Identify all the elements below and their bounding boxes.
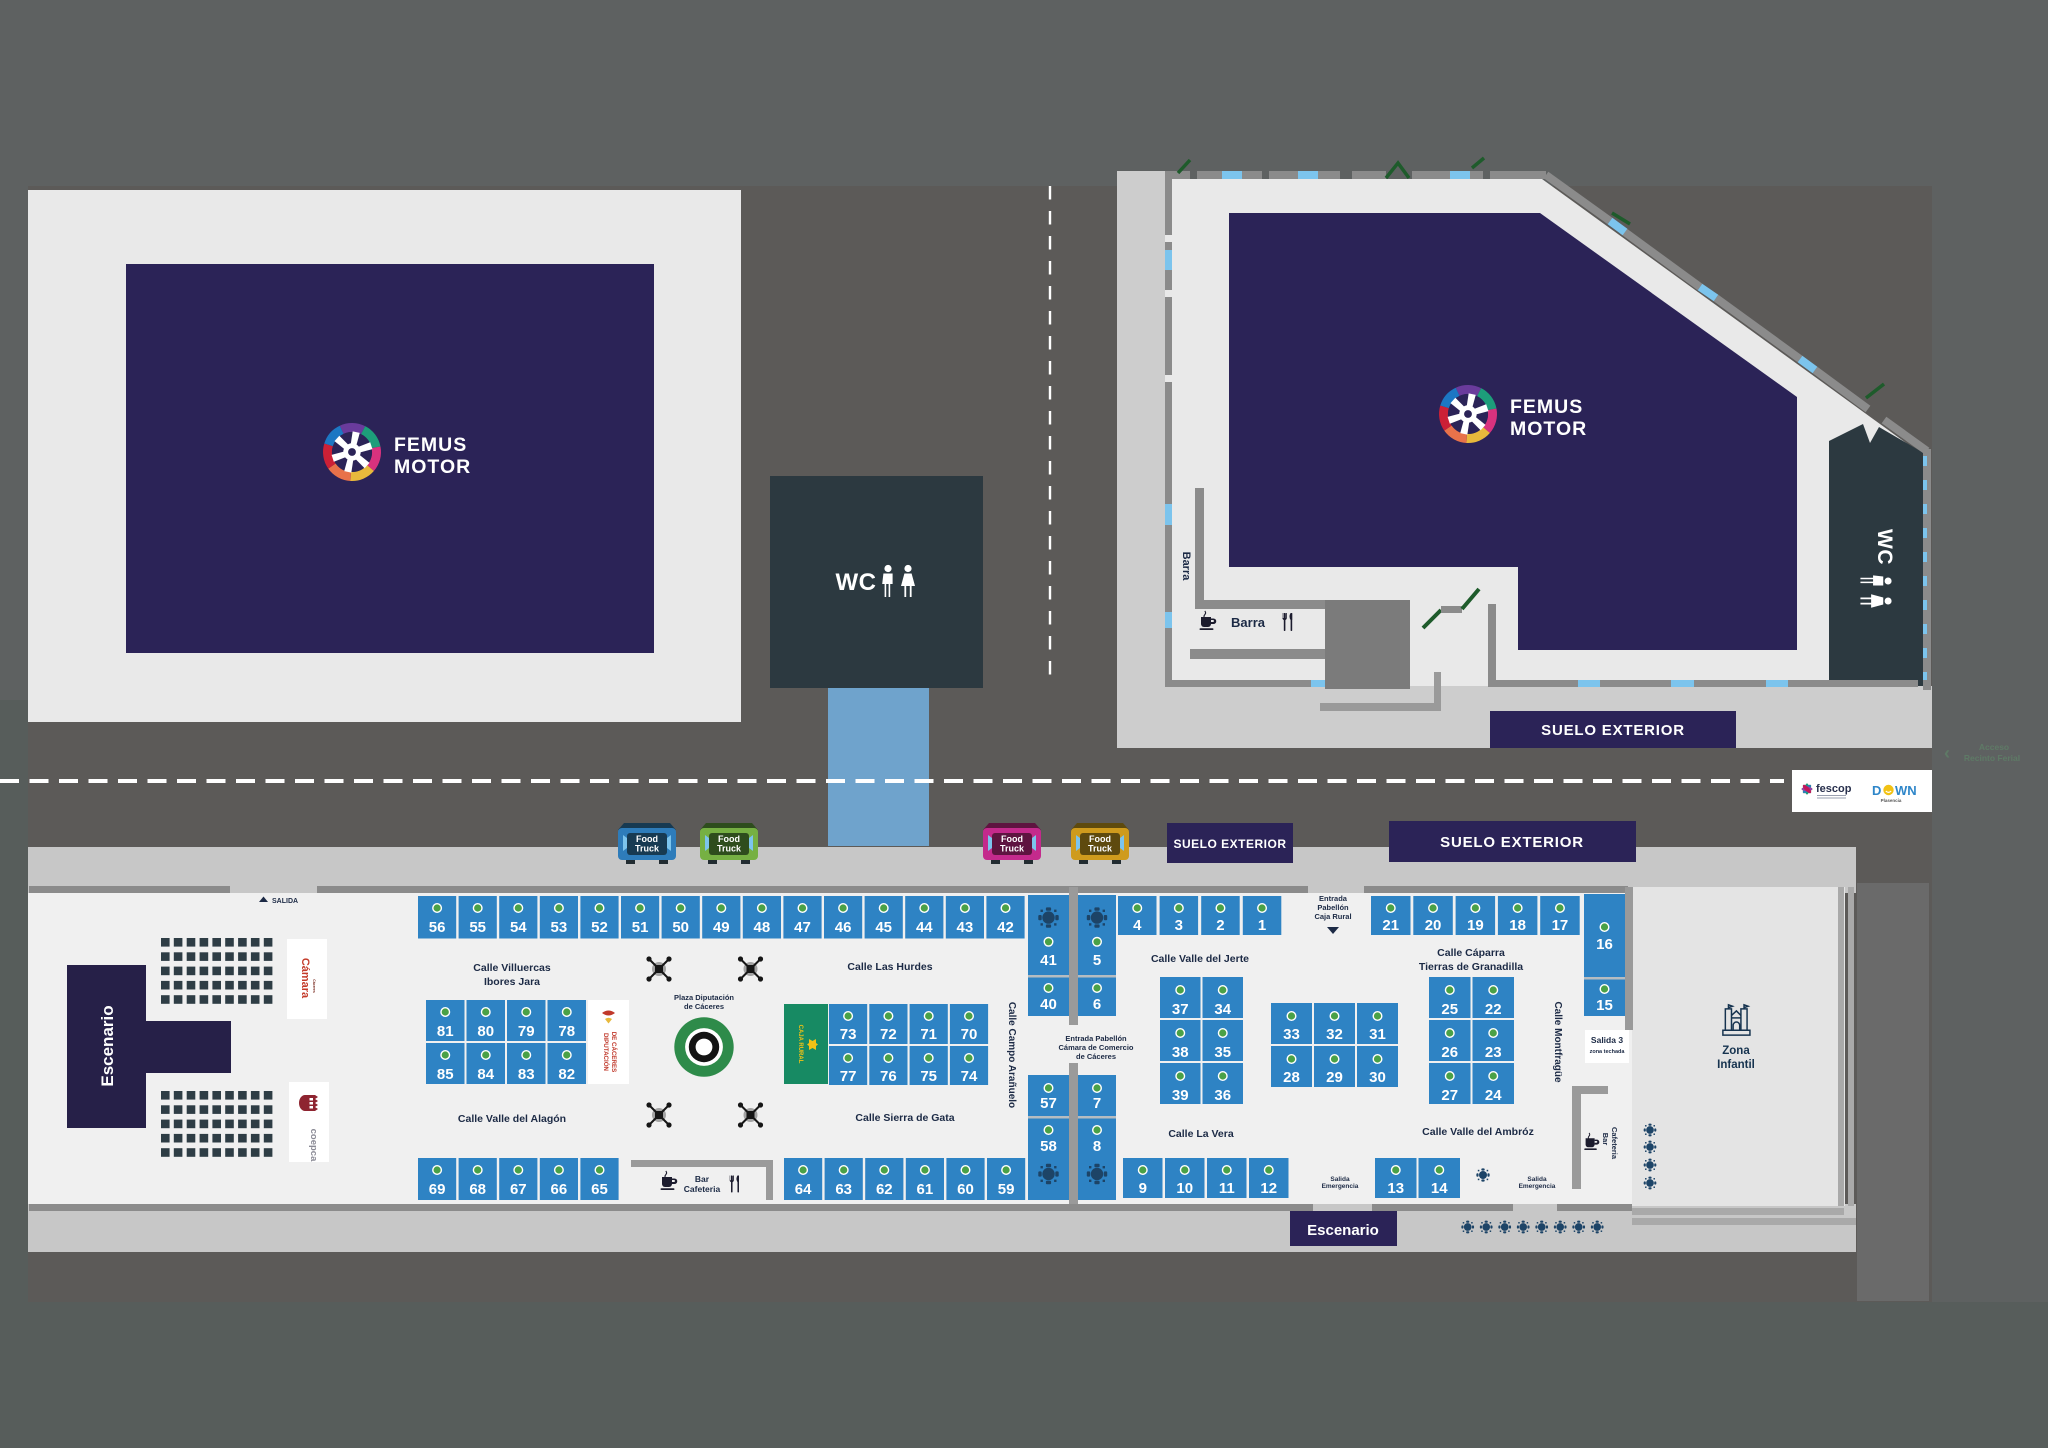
svg-text:69: 69 [429, 1181, 446, 1198]
svg-text:Escenario: Escenario [1307, 1222, 1379, 1239]
svg-text:16: 16 [1596, 936, 1613, 953]
svg-text:Cafeteria: Cafeteria [1610, 1127, 1619, 1160]
svg-text:Recinto Ferial: Recinto Ferial [1964, 753, 2020, 763]
svg-text:Food: Food [718, 834, 740, 844]
svg-text:Cámara: Cámara [299, 958, 311, 999]
svg-text:56: 56 [429, 919, 446, 936]
svg-text:Calle Las Hurdes: Calle Las Hurdes [847, 961, 932, 973]
svg-text:82: 82 [558, 1066, 575, 1083]
svg-text:19: 19 [1467, 917, 1484, 934]
svg-text:62: 62 [876, 1181, 893, 1198]
svg-text:zona techada: zona techada [1590, 1049, 1626, 1055]
svg-text:Truck: Truck [635, 844, 660, 854]
svg-text:57: 57 [1040, 1095, 1057, 1112]
svg-text:66: 66 [551, 1181, 568, 1198]
svg-text:8: 8 [1093, 1138, 1101, 1155]
svg-text:58: 58 [1040, 1138, 1057, 1155]
svg-text:Entrada Pabellón: Entrada Pabellón [1065, 1034, 1127, 1043]
svg-text:Calle Montfragüe: Calle Montfragüe [1552, 1001, 1563, 1083]
svg-text:WN: WN [1895, 783, 1917, 798]
svg-text:Calle Campo Arañuelo: Calle Campo Arañuelo [1006, 1002, 1017, 1108]
svg-text:Calle Sierra de Gata: Calle Sierra de Gata [855, 1112, 954, 1124]
svg-text:14: 14 [1431, 1180, 1448, 1197]
svg-text:de Cáceres: de Cáceres [684, 1002, 724, 1011]
svg-text:73: 73 [840, 1026, 857, 1043]
svg-text:Infantil: Infantil [1717, 1059, 1755, 1071]
svg-text:Ibores Jara: Ibores Jara [484, 976, 540, 988]
svg-text:Truck: Truck [1000, 844, 1025, 854]
svg-text:29: 29 [1326, 1069, 1343, 1086]
svg-text:52: 52 [591, 919, 608, 936]
svg-text:Zona: Zona [1722, 1045, 1750, 1057]
svg-text:80: 80 [477, 1023, 494, 1040]
svg-text:34: 34 [1214, 1001, 1231, 1018]
svg-text:32: 32 [1326, 1026, 1343, 1043]
svg-text:3: 3 [1175, 917, 1183, 934]
svg-text:Calle Villuercas: Calle Villuercas [473, 962, 551, 974]
svg-text:Tierras de Granadilla: Tierras de Granadilla [1419, 961, 1523, 973]
svg-text:30: 30 [1369, 1069, 1386, 1086]
svg-text:36: 36 [1214, 1087, 1231, 1104]
svg-text:26: 26 [1441, 1044, 1458, 1061]
svg-text:47: 47 [794, 919, 811, 936]
svg-text:45: 45 [875, 919, 892, 936]
svg-text:42: 42 [997, 919, 1014, 936]
svg-text:39: 39 [1172, 1087, 1189, 1104]
svg-text:Calle Cáparra: Calle Cáparra [1437, 947, 1505, 959]
svg-text:78: 78 [558, 1023, 575, 1040]
svg-text:FEMUS: FEMUS [394, 434, 467, 456]
svg-text:Food: Food [636, 834, 658, 844]
svg-text:Salida 3: Salida 3 [1591, 1035, 1623, 1045]
svg-text:6: 6 [1093, 996, 1101, 1013]
svg-text:60: 60 [957, 1181, 974, 1198]
svg-text:61: 61 [917, 1181, 934, 1198]
svg-text:Caja Rural: Caja Rural [1314, 912, 1351, 921]
svg-text:Plasencia: Plasencia [1881, 798, 1902, 803]
svg-text:1: 1 [1258, 917, 1266, 934]
svg-text:44: 44 [916, 919, 933, 936]
svg-text:Salida: Salida [1330, 1176, 1350, 1183]
svg-text:FEMUS: FEMUS [1510, 396, 1583, 418]
svg-text:Bar: Bar [695, 1174, 710, 1184]
svg-text:43: 43 [957, 919, 974, 936]
svg-text:5: 5 [1093, 952, 1101, 969]
svg-text:Calle Valle del Alagón: Calle Valle del Alagón [458, 1113, 566, 1125]
svg-text:‹: ‹ [1944, 743, 1950, 763]
svg-text:Cáceres: Cáceres [312, 979, 316, 993]
svg-text:41: 41 [1040, 952, 1057, 969]
svg-text:46: 46 [835, 919, 852, 936]
svg-text:25: 25 [1441, 1001, 1458, 1018]
svg-text:22: 22 [1485, 1001, 1502, 1018]
svg-text:12: 12 [1260, 1180, 1277, 1197]
svg-text:Calle La Vera: Calle La Vera [1168, 1128, 1234, 1140]
svg-text:40: 40 [1040, 996, 1057, 1013]
svg-text:Calle Valle del Ambróz: Calle Valle del Ambróz [1422, 1126, 1534, 1138]
svg-text:SUELO EXTERIOR: SUELO EXTERIOR [1440, 834, 1584, 851]
svg-text:33: 33 [1283, 1026, 1300, 1043]
svg-text:Escenario: Escenario [98, 1005, 117, 1086]
svg-text:48: 48 [754, 919, 771, 936]
svg-text:77: 77 [840, 1068, 857, 1085]
svg-text:63: 63 [835, 1181, 852, 1198]
svg-text:81: 81 [437, 1023, 454, 1040]
svg-text:71: 71 [920, 1026, 937, 1043]
svg-text:49: 49 [713, 919, 730, 936]
svg-text:21: 21 [1382, 917, 1399, 934]
svg-text:20: 20 [1425, 917, 1442, 934]
svg-text:75: 75 [920, 1068, 937, 1085]
svg-text:CAJA RURAL: CAJA RURAL [797, 1025, 803, 1064]
svg-text:67: 67 [510, 1181, 527, 1198]
svg-text:WC: WC [836, 569, 877, 596]
svg-text:27: 27 [1441, 1087, 1458, 1104]
svg-text:18: 18 [1509, 917, 1526, 934]
svg-text:Emergencia: Emergencia [1519, 1183, 1556, 1190]
svg-text:70: 70 [961, 1026, 978, 1043]
svg-text:65: 65 [591, 1181, 608, 1198]
svg-text:MOTOR: MOTOR [1510, 418, 1587, 440]
svg-text:4: 4 [1133, 917, 1142, 934]
svg-text:2: 2 [1216, 917, 1224, 934]
svg-text:Barra: Barra [1180, 552, 1192, 582]
svg-text:38: 38 [1172, 1044, 1189, 1061]
svg-text:WC: WC [1873, 529, 1896, 565]
svg-text:Bar: Bar [1601, 1133, 1610, 1146]
svg-text:Emergencia: Emergencia [1322, 1183, 1359, 1190]
svg-text:Entrada: Entrada [1319, 894, 1348, 903]
svg-text:Acceso: Acceso [1979, 742, 2009, 752]
svg-text:DE CÁCERES: DE CÁCERES [610, 1032, 617, 1073]
svg-text:31: 31 [1369, 1026, 1386, 1043]
svg-text:SALIDA: SALIDA [272, 898, 298, 905]
svg-text:84: 84 [477, 1066, 494, 1083]
svg-text:Food: Food [1089, 834, 1111, 844]
svg-text:7: 7 [1093, 1095, 1101, 1112]
svg-text:Barra: Barra [1231, 615, 1266, 630]
svg-text:76: 76 [880, 1068, 897, 1085]
svg-text:10: 10 [1176, 1180, 1193, 1197]
svg-text:15: 15 [1596, 997, 1613, 1014]
svg-text:64: 64 [795, 1181, 812, 1198]
svg-text:Calle Valle del Jerte: Calle Valle del Jerte [1151, 953, 1249, 965]
svg-text:85: 85 [437, 1066, 454, 1083]
svg-text:Food: Food [1001, 834, 1023, 844]
svg-text:11: 11 [1219, 1180, 1235, 1197]
svg-text:Pabellón: Pabellón [1317, 903, 1349, 912]
svg-text:79: 79 [518, 1023, 535, 1040]
svg-text:37: 37 [1172, 1001, 1189, 1018]
svg-text:68: 68 [469, 1181, 486, 1198]
svg-text:de Cáceres: de Cáceres [1076, 1052, 1116, 1061]
svg-text:fescop: fescop [1816, 783, 1852, 795]
svg-text:DIPUTACIÓN: DIPUTACIÓN [602, 1033, 610, 1072]
svg-text:83: 83 [518, 1066, 535, 1083]
svg-text:9: 9 [1139, 1180, 1147, 1197]
svg-text:SUELO EXTERIOR: SUELO EXTERIOR [1173, 837, 1286, 851]
svg-text:coepca: coepca [308, 1129, 319, 1162]
svg-text:74: 74 [961, 1068, 978, 1085]
svg-text:24: 24 [1485, 1087, 1502, 1104]
svg-text:53: 53 [551, 919, 568, 936]
svg-text:13: 13 [1387, 1180, 1404, 1197]
svg-text:Cafeteria: Cafeteria [684, 1184, 721, 1194]
svg-text:55: 55 [469, 919, 486, 936]
svg-text:51: 51 [632, 919, 649, 936]
svg-text:Salida: Salida [1527, 1176, 1547, 1183]
svg-text:72: 72 [880, 1026, 897, 1043]
svg-text:17: 17 [1552, 917, 1569, 934]
svg-text:28: 28 [1283, 1069, 1300, 1086]
svg-text:35: 35 [1214, 1044, 1231, 1061]
svg-text:D: D [1872, 783, 1881, 798]
svg-text:Cámara de Comercio: Cámara de Comercio [1058, 1043, 1133, 1052]
svg-text:Truck: Truck [717, 844, 742, 854]
svg-text:Truck: Truck [1088, 844, 1113, 854]
svg-text:59: 59 [998, 1181, 1015, 1198]
svg-text:SUELO EXTERIOR: SUELO EXTERIOR [1541, 722, 1685, 739]
svg-text:54: 54 [510, 919, 527, 936]
svg-text:MOTOR: MOTOR [394, 456, 471, 478]
svg-text:50: 50 [672, 919, 689, 936]
svg-text:Plaza Diputación: Plaza Diputación [674, 993, 734, 1002]
svg-text:23: 23 [1485, 1044, 1502, 1061]
